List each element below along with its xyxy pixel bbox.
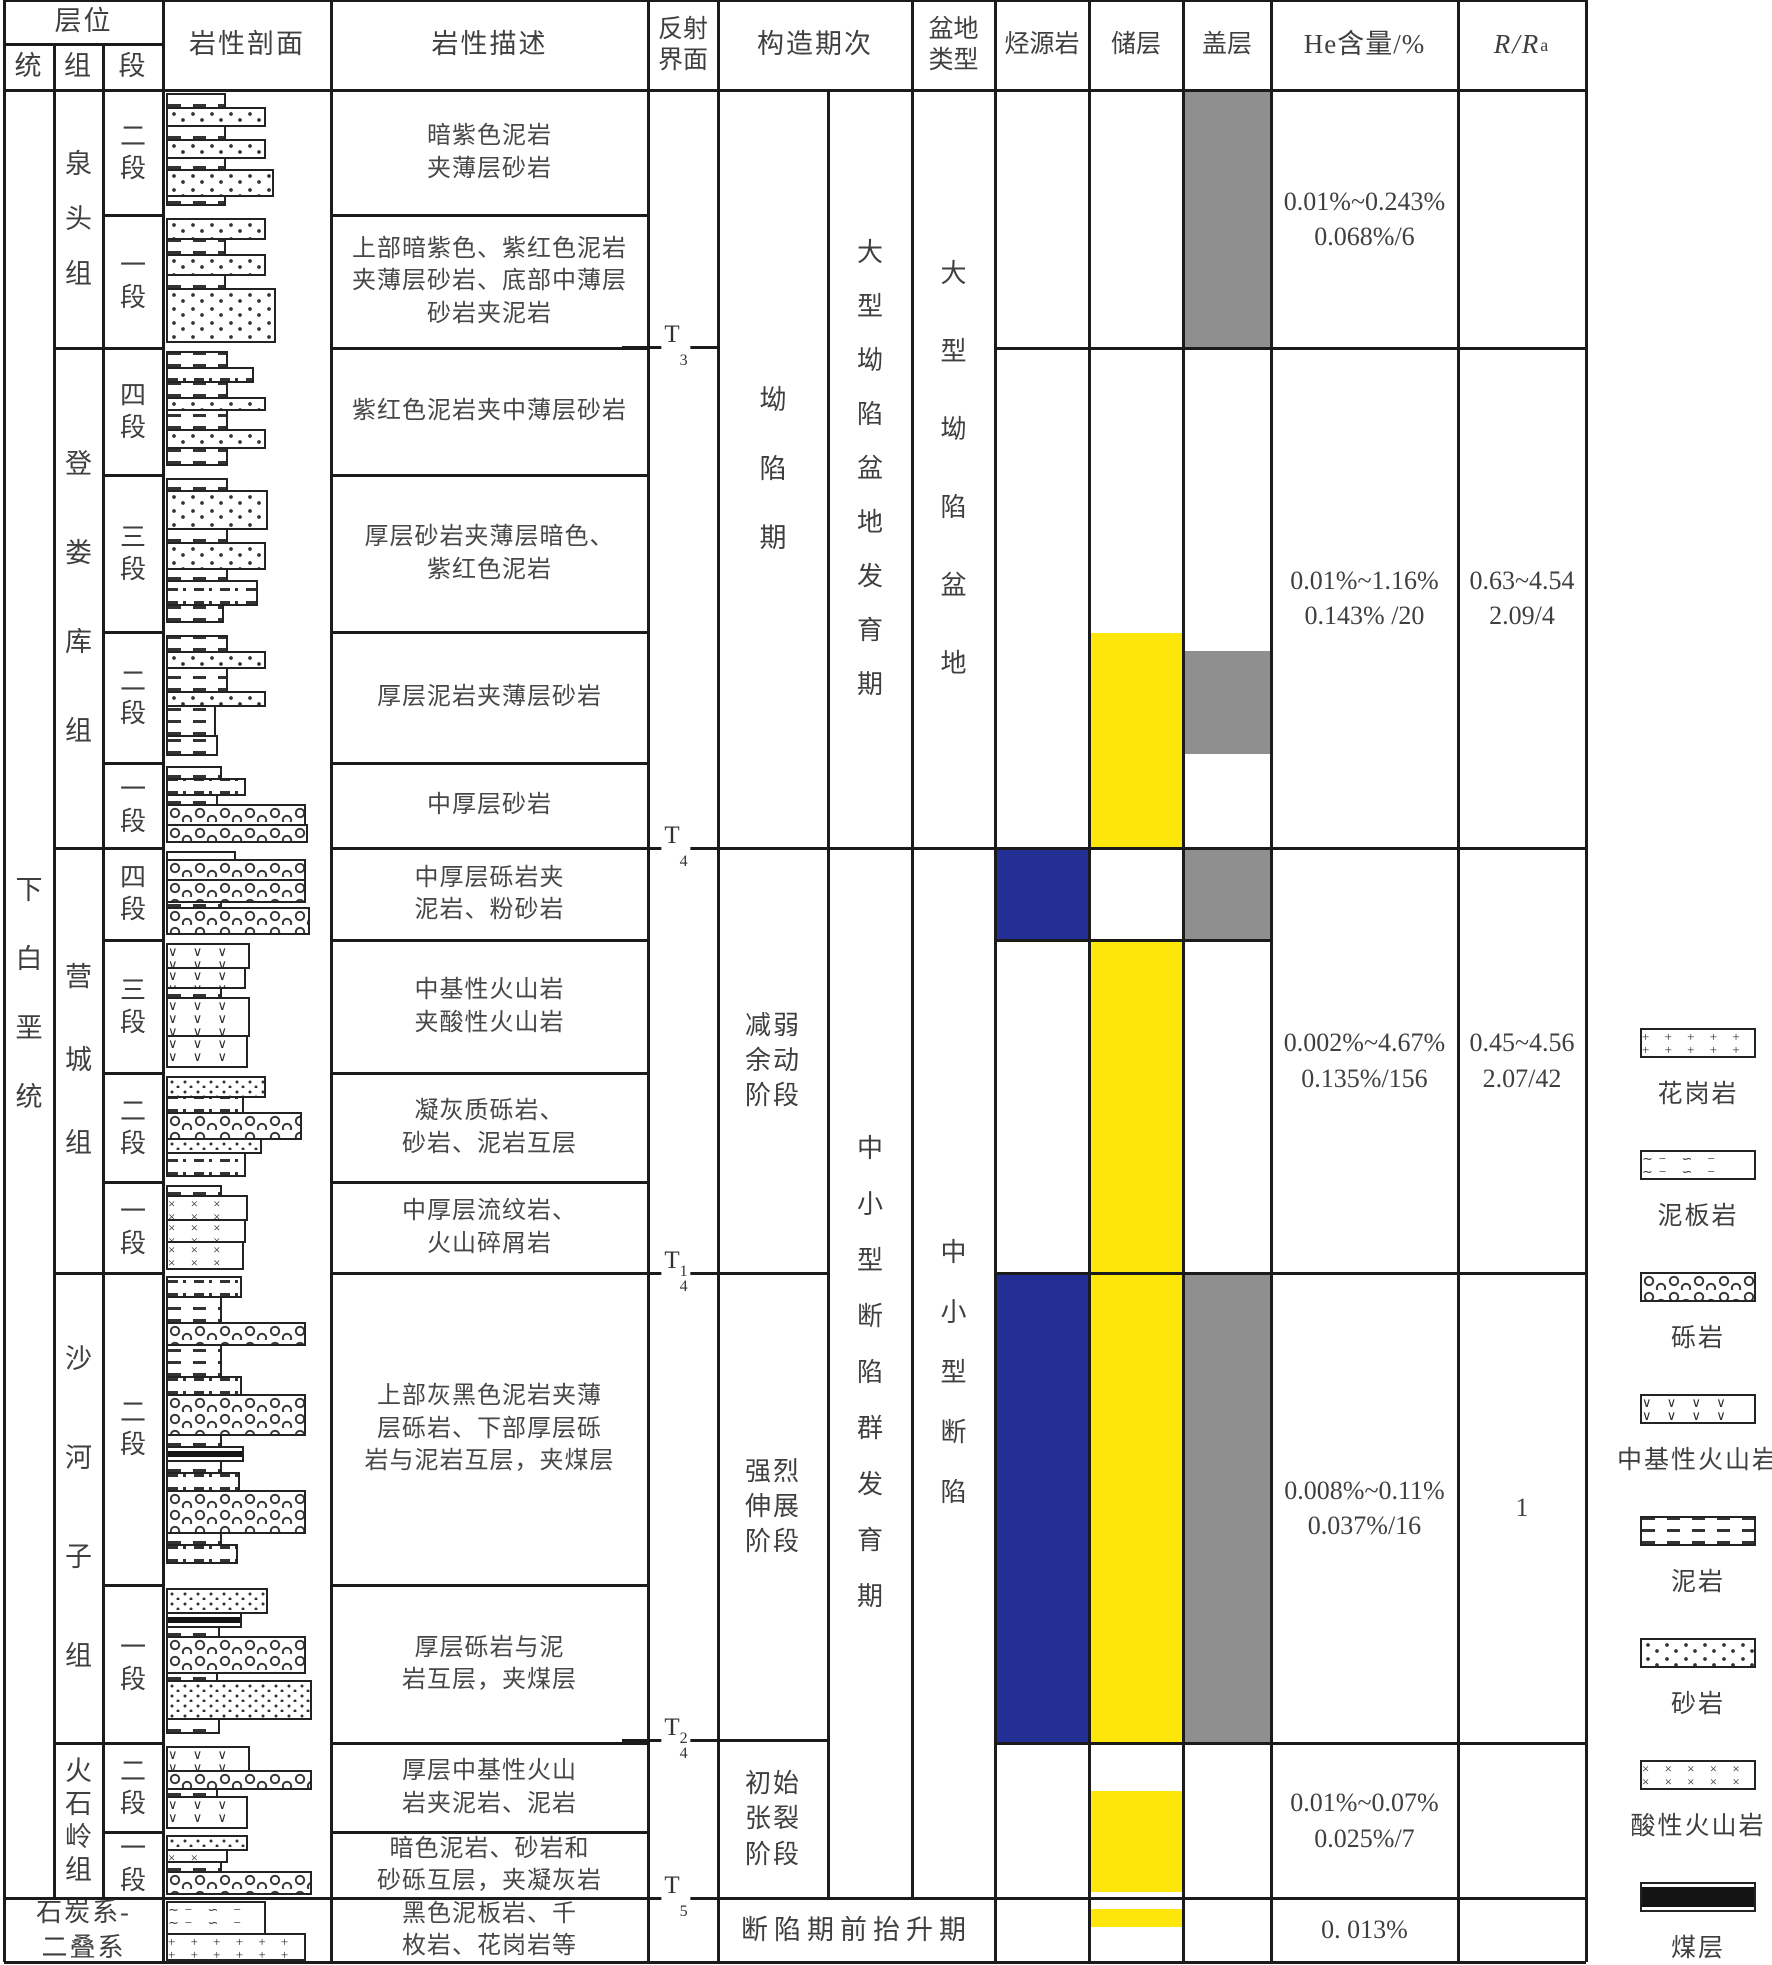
lith-bar-volc: ∨ ∨ ∨ ∨ ∨ ∨ ∨ ∨ ∨ ∨ ∨ ∨ ∨ ∨ ∨ ∨ ∨ ∨ ∨ ∨ … [166,997,250,1037]
stage-label: 减弱 余动 阶段 [718,848,828,1273]
header-series: 统 [4,44,54,90]
lith-bar-sand [166,288,276,343]
lith-bar-mud [166,1344,222,1378]
reservoir-block [1090,1909,1182,1927]
member-description: 中厚层流纹岩、 火山碎屑岩 [331,1182,648,1273]
legend-swatch-sand [1640,1638,1756,1668]
stage-label: 强烈 伸展 阶段 [718,1273,828,1740]
source-rock-block [996,1274,1088,1742]
member-label: 一段 [103,1832,163,1898]
lith-bar-cong [166,804,306,826]
grid-vline [1182,0,1185,1962]
lith-bar-acid: × × × × × × × × × × × × × × × × × × × × … [166,1195,248,1221]
he-content-value: 0.01%~0.243% 0.068%/6 [1271,90,1458,348]
lith-bar-sand [166,107,266,127]
member-label: 二段 [103,632,163,763]
member-label: 二段 [103,1273,163,1585]
lith-bar-mud [166,447,228,466]
lith-bar-dashdot [166,1152,246,1177]
reservoir-block [1090,941,1182,1272]
lith-bar-acid: × × × × × × × × × × × × × × × × × × × × … [166,1241,244,1270]
lith-bar-sand [166,542,266,570]
member-label: 一段 [103,1182,163,1273]
header-member: 段 [103,44,163,90]
reflector-label: T03 [661,321,690,368]
legend-swatch-volc: ∨ ∨ ∨ ∨ ∨ ∨ ∨ ∨ ∨ ∨ ∨ ∨ ∨ ∨ ∨ ∨ ∨ ∨ ∨ ∨ … [1640,1394,1756,1424]
member-description: 暗色泥岩、砂岩和 砂砾互层，夹凝灰岩 [331,1832,648,1898]
basin-type-label: 中小型断陷 [912,848,995,1898]
member-description: 厚层砂岩夹薄层暗色、 紫红色泥岩 [331,475,648,632]
lith-bar-sand [166,429,266,449]
caprock-block [1184,849,1270,939]
member-label: 三段 [103,475,163,632]
lith-bar-cong [166,824,308,843]
lith-bar-dashdot [166,1276,242,1298]
caprock-block [1184,1274,1270,1742]
header-lithology-description: 岩性描述 [331,0,648,90]
member-description: 中厚层砂岩 [331,763,648,848]
lith-bar-mud [166,195,226,206]
lith-bar-mud [166,735,218,756]
member-description: 暗紫色泥岩 夹薄层砂岩 [331,90,648,215]
grid-hline [4,0,1586,2]
lith-bar-mud [166,667,228,693]
lith-bar-dashdot [166,1472,240,1492]
member-label: 二段 [103,90,163,215]
lith-bar-sand [166,169,274,197]
stage-label: 初始 张裂 阶段 [718,1740,828,1898]
member-label: 一段 [103,1585,163,1743]
formation-label: 营城组 [54,848,103,1273]
reservoir-block [1090,633,1182,847]
formation-label: 登娄库组 [54,348,103,848]
lith-bar-volc: ∨ ∨ ∨ ∨ ∨ ∨ ∨ ∨ ∨ ∨ ∨ ∨ ∨ ∨ ∨ ∨ ∨ ∨ ∨ ∨ … [166,1796,248,1829]
member-description: 中基性火山岩 夹酸性火山岩 [331,940,648,1073]
lith-bar-dashdot [166,580,258,606]
legend-swatch-acid: × × × × × × × × × × × × × × × × × × × × … [1640,1760,1756,1790]
lith-bar-volc: ∨ ∨ ∨ ∨ ∨ ∨ ∨ ∨ ∨ ∨ ∨ ∨ ∨ ∨ ∨ ∨ ∨ ∨ ∨ ∨ … [166,967,246,989]
legend-swatch-granite: + + + + + + + + + + + + + + + + + + + + … [1640,1028,1756,1058]
lith-bar-cong [166,1636,306,1674]
formation-label: 沙河子组 [54,1273,103,1743]
header-tectonic-stage: 构造期次 [718,0,912,90]
reflector-label: T24 [661,1714,690,1761]
lith-bar-slate: ∼− ∽ − ∼− ∽ − ∼− ∽ − ∼− ∽ − ∼− ∽ − ∼− ∽ … [166,1901,266,1935]
member-description: 厚层泥岩夹薄层砂岩 [331,632,648,763]
legend-label: 砂岩 [1671,1684,1725,1720]
member-label: 三段 [103,940,163,1073]
member-description: 紫红色泥岩夹中薄层砂岩 [331,348,648,475]
lith-bar-mud [166,1296,222,1324]
r-ra-label: R/R [1494,28,1541,62]
lith-bar-cong [166,1394,306,1436]
legend-label: 泥岩 [1671,1562,1725,1598]
legend-swatch-slate: ∼− ∽ − ∼− ∽ − ∼− ∽ − ∼− ∽ − ∼− ∽ − ∼− ∽ … [1640,1150,1756,1180]
header-caprock: 盖层 [1183,0,1271,90]
uplift-stage-label: 断陷期前抬升期 [718,1898,995,1962]
he-content-value: 0.01%~0.07% 0.025%/7 [1271,1743,1458,1898]
member-label: 二段 [103,1073,163,1182]
reflector-label: T14 [661,1247,690,1294]
he-content-value: 0.002%~4.67% 0.135%/156 [1271,848,1458,1273]
lith-bar-cong [166,1871,312,1895]
stage-period-label: 大型坳陷盆地发育期 [828,90,912,848]
he-content-value: 0.008%~0.11% 0.037%/16 [1271,1273,1458,1743]
member-description: 凝灰质砾岩、 砂岩、泥岩互层 [331,1073,648,1182]
header-reservoir: 储层 [1089,0,1183,90]
lith-bar-acid: × × × × × × × × × × × × × × × × × × × × … [166,1219,246,1243]
lith-bar-cong [166,1770,312,1790]
member-label: 一段 [103,763,163,848]
stage-label: 坳陷期 [718,90,828,848]
lith-bar-sand [166,490,268,530]
he-content-value: 0. 013% [1271,1898,1458,1962]
r-ra-value: 0.63~4.54 2.09/4 [1458,348,1586,848]
source-rock-block [996,849,1088,939]
header-reflection-interface: 反射 界面 [648,0,718,90]
caprock-block [1184,651,1270,754]
member-description: 上部灰黑色泥岩夹薄 层砾岩、下部厚层砾 岩与泥岩互层，夹煤层 [331,1273,648,1585]
member-description: 上部暗紫色、紫红色泥岩 夹薄层砂岩、底部中薄层 砂岩夹泥岩 [331,215,648,348]
grid-vline [1088,0,1091,1962]
legend-label: 砾岩 [1671,1318,1725,1354]
header-he-content: He含量/% [1271,0,1458,90]
member-label: 一段 [103,215,163,348]
legend-label: 泥板岩 [1657,1196,1738,1232]
lith-bar-volc: ∨ ∨ ∨ ∨ ∨ ∨ ∨ ∨ ∨ ∨ ∨ ∨ ∨ ∨ ∨ ∨ ∨ ∨ ∨ ∨ … [166,1035,248,1068]
formation-label: 火石岭组 [54,1743,103,1898]
lith-bar-sand [166,254,266,276]
lith-bar-granite: + + + + + + + + + + + + + + + + + + + + … [166,1933,306,1961]
legend-swatch-coal [1640,1882,1756,1912]
caprock-block [1184,91,1270,347]
reservoir-block [1090,1274,1182,1742]
reflector-label: T04 [661,822,690,869]
header-formation: 组 [54,44,103,90]
grid-hline [995,939,1271,942]
member-description: 中厚层砾岩夹 泥岩、粉砂岩 [331,848,648,940]
member-description: 厚层中基性火山 岩夹泥岩、泥岩 [331,1743,648,1832]
header-horizon: 层位 [4,0,163,44]
header-source-rock: 烃源岩 [995,0,1089,90]
header-lithology-profile: 岩性剖面 [163,0,331,90]
lith-bar-cong [166,879,306,903]
reflector-label: T05 [661,1872,690,1919]
member-label: 四段 [103,848,163,940]
lith-bar-mud [166,409,228,431]
lith-bar-sand [166,218,266,240]
legend-swatch-mud [1640,1516,1756,1546]
series-label: 下白垩统 [4,90,54,1898]
lith-bar-dashdot [166,1544,238,1564]
lith-bar-mud [166,604,224,623]
legend-label: 煤层 [1671,1928,1725,1964]
lith-bar-cong [166,1322,306,1346]
legend-label: 花岗岩 [1657,1074,1738,1110]
lith-bar-mud [166,1718,220,1734]
lith-bar-sand [166,139,266,159]
legend-swatch-cong [1640,1272,1756,1302]
member-description: 厚层砾岩与泥 岩互层，夹煤层 [331,1585,648,1743]
bottom-row-label: 石炭系- 二叠系 [4,1898,163,1962]
basin-type-label: 大型坳陷盆地 [912,90,995,848]
lith-bar-cong [166,907,310,935]
grid-hline [4,43,163,46]
header-r-ra: R/Ra [1458,0,1586,90]
legend-label: 中基性火山岩 [1617,1440,1772,1476]
legend-label: 酸性火山岩 [1630,1806,1765,1842]
r-ra-value: 0.45~4.56 2.07/42 [1458,848,1586,1273]
lith-bar-sandf [166,1680,312,1720]
lith-bar-cong [166,1112,302,1140]
lith-bar-dashdot [166,1376,242,1396]
stage-period-label: 中小型断陷群发育期 [828,848,912,1898]
header-basin-type: 盆地 类型 [912,0,995,90]
lith-bar-mud [166,705,216,737]
lith-bar-sandf [166,1588,268,1614]
reservoir-block [1090,1791,1182,1892]
he-content-value: 0.01%~1.16% 0.143% /20 [1271,348,1458,848]
lith-bar-cong [166,1490,306,1534]
member-label: 四段 [103,348,163,475]
r-ra-value: 1 [1458,1273,1586,1743]
formation-label: 泉头组 [54,90,103,348]
lith-bar-cong [166,859,306,881]
member-label: 二段 [103,1743,163,1832]
bottom-row-description: 黑色泥板岩、千 枚岩、花岗岩等 [331,1898,648,1962]
lith-bar-volc: ∨ ∨ ∨ ∨ ∨ ∨ ∨ ∨ ∨ ∨ ∨ ∨ ∨ ∨ ∨ ∨ ∨ ∨ ∨ ∨ … [166,1746,250,1772]
lith-bar-volc: ∨ ∨ ∨ ∨ ∨ ∨ ∨ ∨ ∨ ∨ ∨ ∨ ∨ ∨ ∨ ∨ ∨ ∨ ∨ ∨ … [166,943,250,969]
lith-bar-sandf [166,1076,266,1098]
stratigraphic-column-chart: 层位 统 组 段 岩性剖面 岩性描述 反射 界面 构造期次 盆地 类型 烃源岩 … [0,0,1772,1965]
